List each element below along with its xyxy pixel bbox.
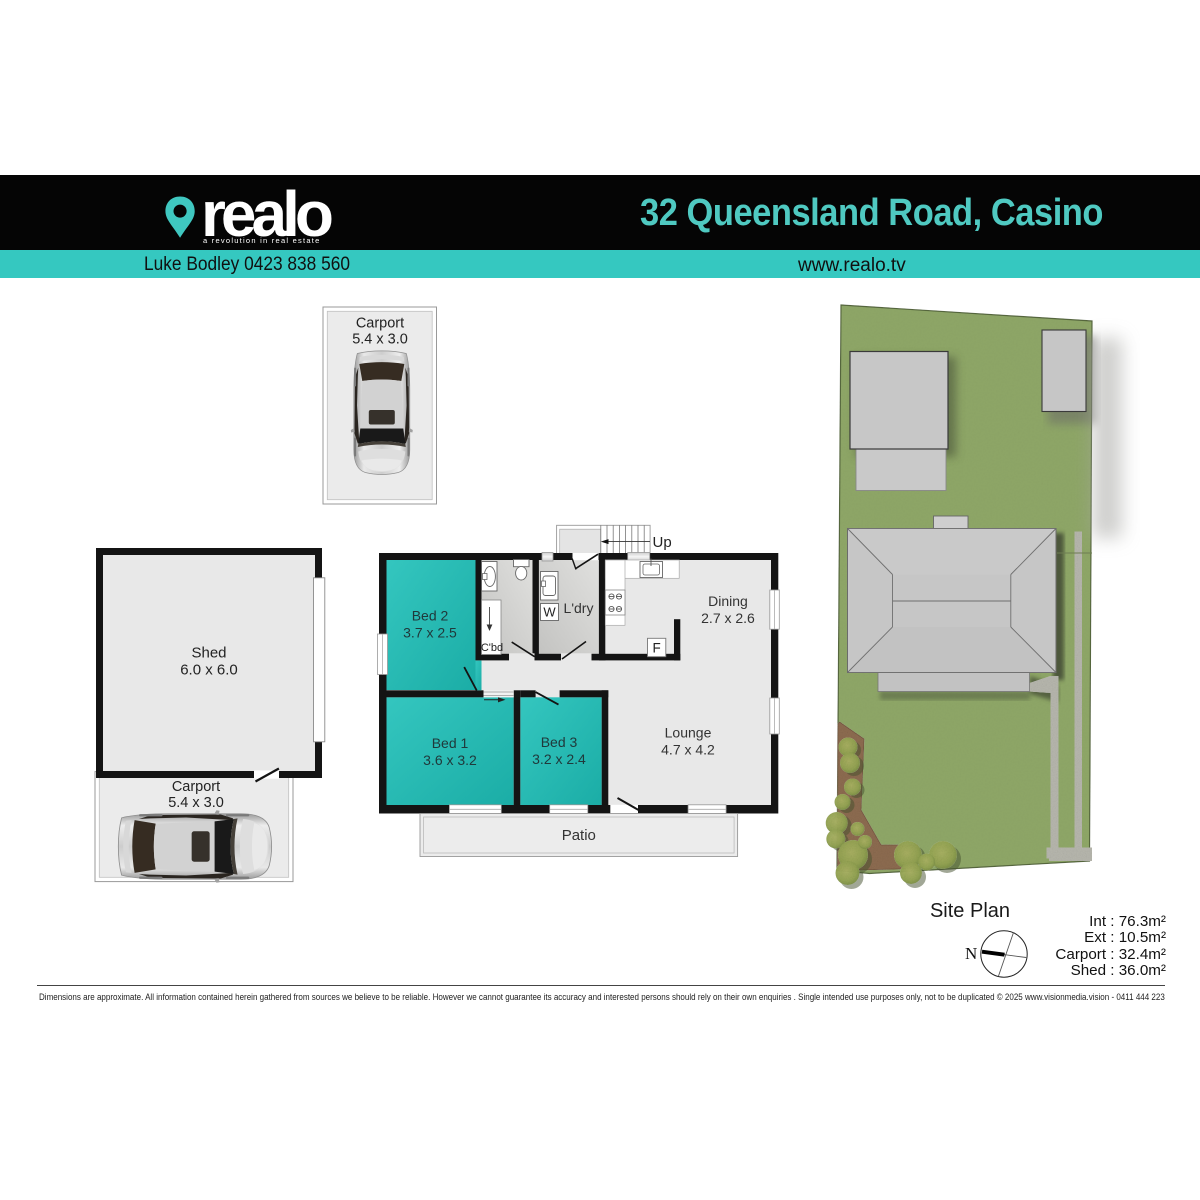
- svg-text:2.7 x 2.6: 2.7 x 2.6: [701, 610, 755, 626]
- svg-text:4.7 x 4.2: 4.7 x 4.2: [661, 742, 715, 758]
- svg-text:5.4 x 3.0: 5.4 x 3.0: [352, 332, 408, 348]
- svg-text:5.4 x 3.0: 5.4 x 3.0: [168, 795, 224, 811]
- svg-text:Patio: Patio: [562, 827, 596, 844]
- svg-text:Dining: Dining: [708, 593, 748, 609]
- svg-text:Carport: Carport: [172, 779, 220, 795]
- svg-text:Shed: Shed: [191, 645, 226, 662]
- svg-text:Lounge: Lounge: [665, 725, 712, 741]
- svg-text:Bed 1: Bed 1: [432, 735, 469, 751]
- svg-text:Bed 3: Bed 3: [541, 734, 578, 750]
- svg-text:C'bd: C'bd: [481, 642, 503, 654]
- svg-text:Carport: Carport: [356, 316, 404, 332]
- svg-text:Up: Up: [653, 534, 672, 551]
- svg-text:6.0 x 6.0: 6.0 x 6.0: [180, 662, 238, 679]
- svg-text:3.6 x 3.2: 3.6 x 3.2: [423, 752, 477, 768]
- svg-text:3.7 x 2.5: 3.7 x 2.5: [403, 625, 457, 641]
- svg-text:L'dry: L'dry: [564, 600, 594, 616]
- svg-text:3.2 x 2.4: 3.2 x 2.4: [532, 751, 586, 767]
- svg-text:W: W: [543, 605, 556, 620]
- svg-text:F: F: [652, 641, 660, 656]
- svg-text:Bed 2: Bed 2: [412, 608, 449, 624]
